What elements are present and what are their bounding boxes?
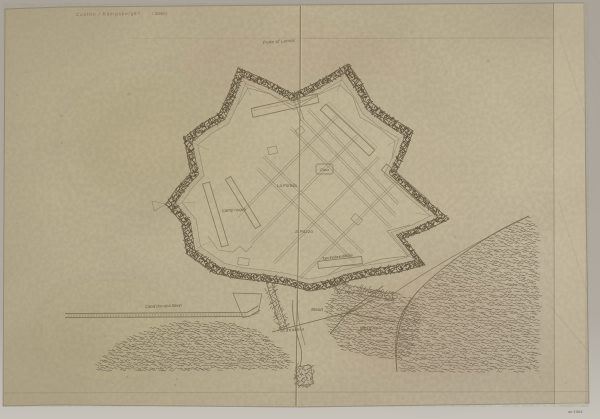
svg-text:/ Stettin: / Stettin xyxy=(151,11,167,16)
svg-text:an 1584: an 1584 xyxy=(568,409,583,414)
svg-text:S.Pazzo: S.Pazzo xyxy=(295,229,313,234)
svg-text:Casa: Casa xyxy=(320,167,330,172)
svg-text:Mora: Mora xyxy=(360,326,372,331)
svg-text:Stean: Stean xyxy=(311,307,324,312)
svg-text:La Fortela: La Fortela xyxy=(277,183,298,188)
